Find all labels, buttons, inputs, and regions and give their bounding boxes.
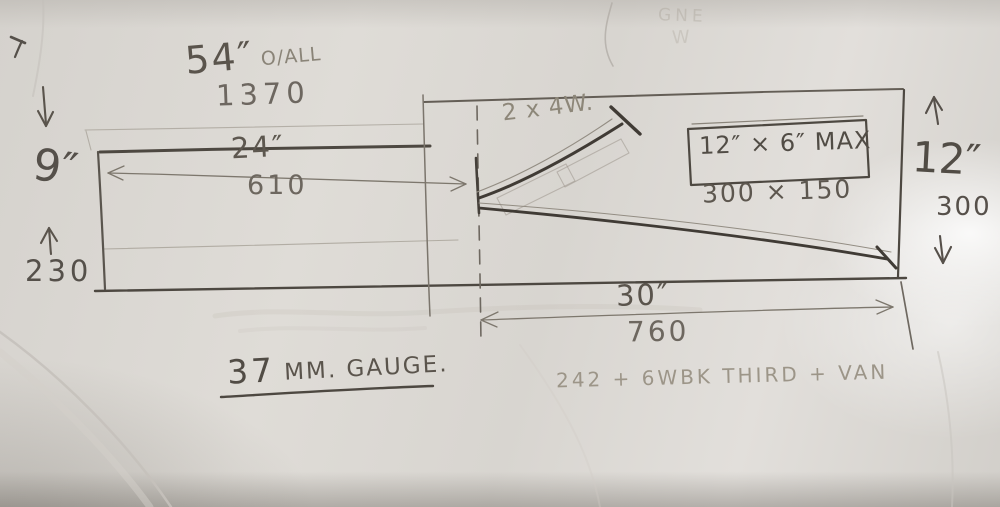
left-board-length-label: 24″ (230, 132, 285, 164)
left-board-length-mm-label: 610 (247, 172, 308, 199)
left-board-depth-label: 9″ (30, 143, 80, 193)
gauge-number: 37 (226, 353, 276, 388)
left-board-depth-mm-label: 230 (25, 257, 92, 286)
overall-length-suffix: O/ALL (260, 45, 322, 69)
paper-creases (0, 0, 953, 507)
main-board-length-mm-label: 760 (627, 317, 690, 346)
siding-track (477, 107, 640, 215)
main-board-depth-label: 12″ (911, 136, 982, 182)
left-board-outline (95, 146, 906, 291)
corner-mark (11, 37, 25, 57)
sketch-linework (0, 0, 1000, 507)
wagon-outline (557, 139, 629, 187)
overall-length-inches: 54″ (184, 36, 256, 80)
ghost-bleed-text-2: W (672, 28, 695, 47)
dim-30-arrow (481, 282, 913, 349)
overall-length-mm-label: 1370 (216, 78, 311, 110)
ghost-bleed-text-1: GNE (658, 7, 707, 26)
max-size-mm-label: 300 × 150 (702, 176, 853, 206)
main-board-depth-mm-label: 300 (936, 194, 992, 220)
main-track (479, 203, 896, 268)
max-size-inches-label: 12″ × 6″ MAX (699, 128, 872, 158)
paper-sketch: 54″ O/ALL 1370 24″ 610 9″ 230 2 x 4W. 12… (0, 0, 1000, 507)
main-board-length-label: 30″ (616, 280, 671, 311)
